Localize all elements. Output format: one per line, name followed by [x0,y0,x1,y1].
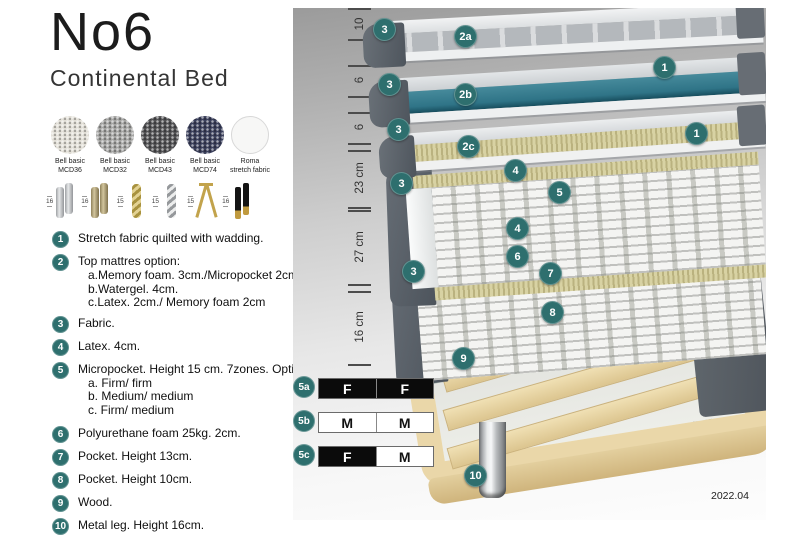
list-item-number: 5 [52,362,69,379]
firmness-bar-5a: F F [318,378,434,399]
black-gold-leg-icon [230,181,252,221]
list-item-number: 2 [52,254,69,271]
list-item: 9 Wood. [52,495,314,512]
fabric-swatch-circle [51,116,89,154]
callout-10: 10 [464,464,487,487]
measure-tick [348,284,371,286]
leg-option: 16 [222,181,252,221]
leg-option: 15 [187,181,217,221]
version-label: 2022.04 [711,490,749,502]
firmness-cell: F [319,447,376,466]
list-item: 7 Pocket. Height 13cm. [52,449,314,466]
callout-4: 4 [506,217,529,240]
list-item-number: 9 [52,495,69,512]
measure-tick [348,150,371,152]
list-item: 3 Fabric. [52,316,314,333]
callout-3: 3 [387,118,410,141]
leg-option: 15 [152,181,182,221]
fabric-swatch: Bell basicMCD36 [49,116,91,176]
measure-label: 6 [354,77,366,83]
page: { "header": { "title": "No6", "subtitle"… [0,0,800,533]
callout-4: 4 [504,159,527,182]
callout-2b: 2b [454,83,477,106]
fabric-swatch: Bell basicMCD43 [139,116,181,176]
measure-tick [348,207,371,209]
firmness-cell: F [377,379,434,398]
leg-options: 16 16 15 15 15 16 [46,181,252,221]
layer-end-cap [737,52,766,96]
callout-2c: 2c [457,135,480,158]
leg-height-label: 16 [81,196,88,207]
fabric-swatch-circle [231,116,269,154]
list-item-number: 10 [52,518,69,535]
list-item-number: 6 [52,426,69,443]
twisted-gold-leg-icon [125,181,147,221]
fabric-swatch: Bell basicMCD74 [184,116,226,176]
measure-tick [348,96,371,98]
leg-option: 16 [46,181,76,221]
page-subtitle: Continental Bed [50,65,229,92]
firmness-cell: M [377,413,434,432]
list-item: 6 Polyurethane foam 25kg. 2cm. [52,426,314,443]
firmness-row-id: 5a [293,376,315,398]
twisted-silver-leg-icon [160,181,182,221]
callout-5: 5 [548,181,571,204]
leg-height-label: 15 [116,196,123,207]
leg-option: 16 [81,181,111,221]
callout-8: 8 [541,301,564,324]
leg-height-label: 15 [187,196,194,207]
list-item-text: Stretch fabric quilted with wadding. [78,231,263,248]
list-item-text: Latex. 4cm. [78,339,140,356]
fabric-swatch-circle [96,116,134,154]
hairpin-leg-icon [195,181,217,221]
measure-tick [348,210,371,212]
list-item: 10 Metal leg. Height 16cm. [52,518,314,535]
measure-tick [348,112,371,114]
cylinder-silver-leg-icon [54,181,76,221]
firmness-cell: F [319,379,376,398]
callout-3: 3 [402,260,425,283]
layer-end-cap [735,8,765,39]
list-item-text: Wood. [78,495,112,512]
measure-label: 6 [354,124,366,130]
exploded-bed-diagram: 10 6 6 23 cm 27 cm 16 cm [293,8,766,520]
list-item-text: Pocket. Height 13cm. [78,449,192,466]
fabric-swatch-label: Bell basicMCD32 [100,158,130,176]
measure-label: 23 cm [354,162,366,193]
firmness-row-id: 5b [293,410,315,432]
list-item: 5 Micropocket. Height 15 cm. 7zones. Opt… [52,362,314,418]
page-title: No6 [50,4,229,61]
measure-tick [348,364,371,366]
list-item-number: 4 [52,339,69,356]
parts-list: 1 Stretch fabric quilted with wadding. 2… [52,231,314,541]
callout-7: 7 [539,262,562,285]
list-item: 2 Top mattres option: a.Memory foam. 3cm… [52,254,314,310]
list-item-number: 3 [52,316,69,333]
list-item-text: Polyurethane foam 25kg. 2cm. [78,426,241,443]
fabric-swatch: Bell basicMCD32 [94,116,136,176]
firmness-cell: M [319,413,376,432]
callout-1: 1 [653,56,676,79]
measure-tick [348,8,371,10]
list-item: 4 Latex. 4cm. [52,339,314,356]
list-item-number: 8 [52,472,69,489]
measure-label: 16 cm [354,311,366,342]
list-item-text: Top mattres option: [78,254,298,269]
list-item: 1 Stretch fabric quilted with wadding. [52,231,314,248]
fabric-swatch-circle [141,116,179,154]
title-block: No6 Continental Bed [50,4,229,92]
fabric-swatch-label: Bell basicMCD43 [145,158,175,176]
list-item-text: Pocket. Height 10cm. [78,472,192,489]
leg-option: 15 [116,181,146,221]
measure-label: 27 cm [354,231,366,262]
metal-leg-front [479,422,506,498]
leg-height-label: 16 [46,196,53,207]
callout-6: 6 [506,245,529,268]
list-item-text: Fabric. [78,316,115,333]
fabric-swatch-label: Romastretch fabric [230,158,270,176]
measure-tick [348,291,371,293]
callout-2a: 2a [454,25,477,48]
list-item-text: Metal leg. Height 16cm. [78,518,204,535]
list-item-text: Micropocket. Height 15 cm. 7zones. Optio… [78,362,311,377]
firmness-bar-5c: F M [318,446,434,467]
callout-3: 3 [378,73,401,96]
list-item-options: a.Memory foam. 3cm./Micropocket 2cm b.Wa… [88,269,298,310]
firmness-cell: M [377,447,434,466]
firmness-bar-5b: M M [318,412,434,433]
fabric-swatches: Bell basicMCD36 Bell basicMCD32 Bell bas… [49,116,271,176]
leg-height-label: 16 [222,196,229,207]
fabric-swatch-label: Bell basicMCD74 [190,158,220,176]
callout-9: 9 [452,347,475,370]
list-item-number: 7 [52,449,69,466]
cylinder-brass-leg-icon [89,181,111,221]
list-item-options: a. Firm/ firm b. Medium/ medium c. Firm/… [88,377,311,418]
callout-1: 1 [685,122,708,145]
firmness-row-id: 5c [293,444,315,466]
callout-3: 3 [373,18,396,41]
list-item-number: 1 [52,231,69,248]
fabric-swatch-circle [186,116,224,154]
fabric-swatch: Romastretch fabric [229,116,271,176]
fabric-swatch-label: Bell basicMCD36 [55,158,85,176]
list-item: 8 Pocket. Height 10cm. [52,472,314,489]
leg-height-label: 15 [152,196,159,207]
measure-tick [348,143,371,145]
callout-3: 3 [390,172,413,195]
